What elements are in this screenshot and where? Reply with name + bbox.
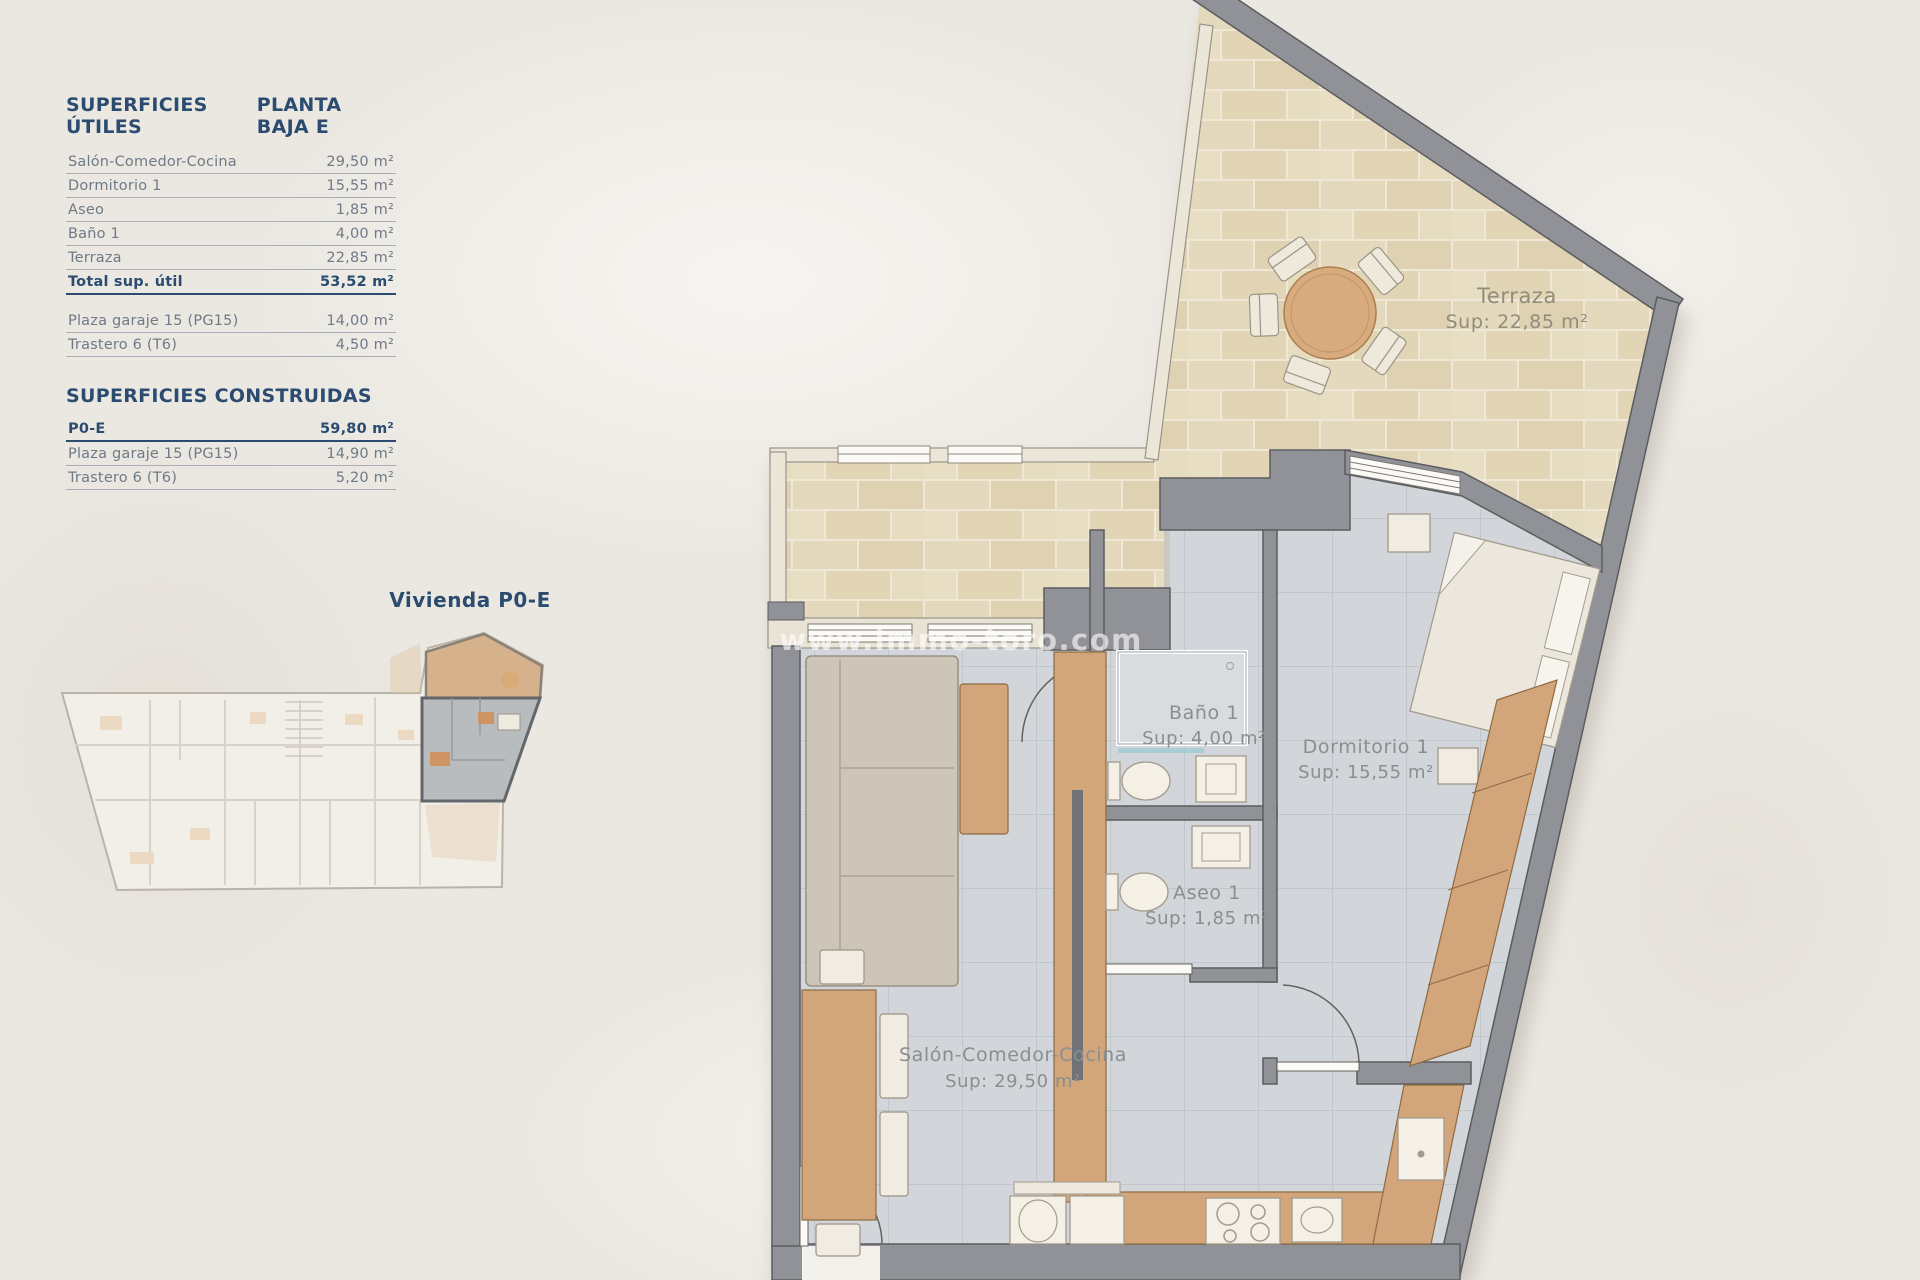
aseo-label: Aseo 1 [1173,882,1241,904]
watermark: www.immo-toro.com [779,623,1143,657]
unit-label: Vivienda P0-E [330,588,610,612]
parapet-window [838,446,1022,463]
wall-bath-divider [1104,806,1277,820]
washbasin [1192,826,1250,868]
table-row: Plaza garaje 15 (PG15)14,90 m² [66,442,396,466]
wall-left [772,646,800,1246]
terrace-table [1284,267,1376,359]
nightstand [1438,748,1478,784]
wall-aseo-south [1190,968,1277,982]
table-row: Terraza22,85 m² [66,246,396,270]
floor-plan-page: Terraza Sup: 22,85 m² Baño 1 Sup: 4,00 m… [0,0,1920,1280]
table-row: Dormitorio 115,55 m² [66,174,396,198]
aseo-sup: Sup: 1,85 m² [1145,908,1269,929]
plan-name: PLANTA BAJA E [257,94,396,138]
dormitorio-sup: Sup: 15,55 m² [1298,762,1434,783]
dormitorio-label: Dormitorio 1 [1303,736,1430,758]
kitchen-sink [1398,1118,1444,1180]
counter-strip [1014,1182,1120,1194]
built-surfaces-title: SUPERFICIES CONSTRUIDAS [66,385,396,407]
washbasin [1196,756,1246,802]
dining-table [802,990,876,1220]
useful-surfaces-header: SUPERFICIES ÚTILES PLANTA BAJA E [66,94,396,138]
washing-machine [1010,1196,1066,1244]
useful-surfaces-title: SUPERFICIES ÚTILES [66,94,257,138]
toilet [1106,873,1168,911]
table-row: Aseo1,85 m² [66,198,396,222]
mini-plan [62,633,543,890]
table-row: Baño 14,00 m² [66,222,396,246]
nightstand [1388,514,1430,552]
main-plan: Terraza Sup: 22,85 m² Baño 1 Sup: 4,00 m… [768,0,1688,1280]
terraza-sup: Sup: 22,85 m² [1446,311,1589,333]
sofa [806,656,958,986]
dishwasher [1070,1196,1124,1244]
second-sink [1292,1198,1342,1242]
table-row: Salón-Comedor-Cocina29,50 m² [66,150,396,174]
terraza-label: Terraza [1476,284,1557,308]
surfaces-panel: SUPERFICIES ÚTILES PLANTA BAJA E Salón-C… [66,94,396,490]
table-row: Trastero 6 (T6)4,50 m² [66,333,396,357]
bano-sup: Sup: 4,00 m² [1142,728,1266,749]
salon-label: Salón-Comedor-Cocina [899,1044,1127,1066]
table-row: Trastero 6 (T6)5,20 m² [66,466,396,490]
salon-sup: Sup: 29,50 m² [945,1071,1081,1092]
table-row: P0-E59,80 m² [66,417,396,442]
wall-kitchen-stub [1263,1058,1277,1084]
bano-label: Baño 1 [1169,702,1239,724]
toilet [1108,762,1170,800]
table-row: Plaza garaje 15 (PG15)14,00 m² [66,309,396,333]
dormitorio-door-leaf [1277,1062,1359,1071]
stove [1206,1198,1280,1244]
tv [1072,790,1083,1080]
coffee-table [960,684,1008,834]
total-row: Total sup. útil53,52 m² [66,270,396,295]
aseo-door-leaf [1102,964,1192,974]
wall-kitchen-top [1357,1062,1471,1084]
